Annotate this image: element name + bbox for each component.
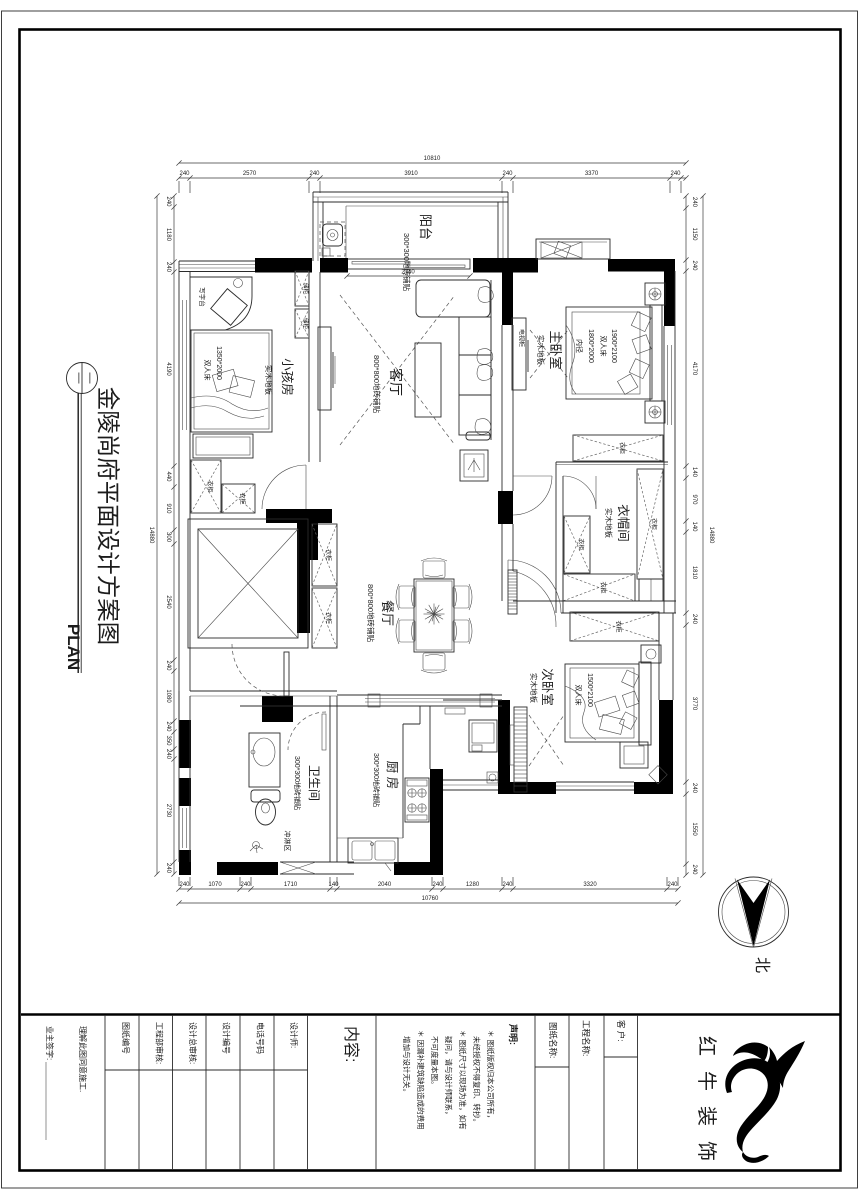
svg-text:800*800地砖铺贴: 800*800地砖铺贴: [366, 584, 376, 642]
svg-text:衣柜: 衣柜: [618, 442, 626, 454]
svg-text:240: 240: [502, 171, 513, 177]
svg-text:4170: 4170: [691, 362, 697, 376]
svg-text:300*300地砖铺贴: 300*300地砖铺贴: [372, 753, 381, 807]
svg-text:阳台: 阳台: [418, 214, 433, 240]
svg-text:衣柜: 衣柜: [325, 612, 333, 624]
svg-text:240: 240: [667, 882, 678, 888]
svg-text:PLAN: PLAN: [64, 624, 83, 670]
svg-text:设计总审核:: 设计总审核:: [188, 1022, 198, 1064]
svg-text:＊ 因漏补建筑缺陷造成的费用: ＊ 因漏补建筑缺陷造成的费用: [416, 1030, 426, 1130]
svg-text:实木地板: 实木地板: [529, 673, 539, 703]
svg-text:增加与设计无关。: 增加与设计无关。: [402, 1036, 412, 1096]
svg-text:2540: 2540: [165, 595, 171, 609]
svg-text:240: 240: [309, 171, 320, 177]
svg-text:实木地板: 实木地板: [264, 365, 274, 395]
svg-text:3370: 3370: [585, 171, 599, 177]
svg-text:餐厅: 餐厅: [380, 600, 395, 626]
svg-text:2040: 2040: [378, 882, 392, 888]
svg-text:350: 350: [165, 735, 171, 746]
svg-text:储柜: 储柜: [302, 318, 310, 330]
svg-text:14880: 14880: [708, 527, 714, 544]
svg-text:240: 240: [165, 262, 171, 273]
svg-text:240: 240: [691, 197, 697, 208]
svg-text:140: 140: [691, 467, 697, 478]
svg-text:240: 240: [670, 171, 681, 177]
svg-text:电视柜: 电视柜: [518, 329, 526, 347]
svg-text:声明:: 声明:: [508, 1023, 519, 1045]
svg-text:1280: 1280: [466, 882, 480, 888]
svg-text:业主签字:: 业主签字:: [45, 1026, 55, 1060]
svg-text:设计编号: 设计编号: [222, 1022, 232, 1054]
svg-text:饰: 饰: [695, 1141, 718, 1161]
svg-text:240: 240: [691, 614, 697, 625]
svg-text:240: 240: [691, 864, 697, 875]
svg-text:3320: 3320: [583, 882, 597, 888]
svg-text:双人床: 双人床: [203, 360, 212, 381]
svg-text:电话号码: 电话号码: [256, 1022, 266, 1054]
svg-text:工程部审核:: 工程部审核:: [155, 1022, 165, 1064]
svg-text:图纸名称:: 图纸名称:: [548, 1022, 558, 1058]
svg-text:客 户:: 客 户:: [616, 1020, 626, 1042]
svg-text:金陵尚府平面设计方案图: 金陵尚府平面设计方案图: [95, 387, 121, 646]
svg-text:14880: 14880: [148, 527, 154, 544]
svg-text:＊ 图纸版权归本公司所有，: ＊ 图纸版权归本公司所有，: [486, 1030, 496, 1122]
svg-text:10810: 10810: [424, 156, 441, 162]
svg-text:客厅: 客厅: [388, 368, 404, 396]
svg-text:实木地板: 实木地板: [604, 508, 614, 538]
svg-text:写字台: 写字台: [198, 287, 207, 307]
svg-text:240: 240: [179, 882, 190, 888]
svg-text:实木地板: 实木地板: [536, 335, 546, 365]
svg-text:内径: 内径: [575, 339, 584, 353]
svg-text:衣柜: 衣柜: [577, 538, 585, 550]
svg-text:图纸编号: 图纸编号: [121, 1022, 131, 1054]
svg-text:小孩房: 小孩房: [280, 358, 295, 396]
svg-text:4190: 4190: [165, 362, 171, 376]
svg-text:1900*2100: 1900*2100: [610, 329, 617, 363]
svg-text:双人床: 双人床: [574, 685, 583, 706]
svg-text:140: 140: [691, 521, 697, 532]
svg-text:1550: 1550: [691, 822, 697, 836]
svg-text:240: 240: [165, 660, 171, 671]
svg-text:240: 240: [691, 783, 697, 794]
svg-text:240: 240: [691, 260, 697, 271]
svg-text:240: 240: [432, 882, 443, 888]
svg-text:卫生间: 卫生间: [307, 765, 321, 801]
svg-text:1070: 1070: [208, 882, 222, 888]
svg-text:970: 970: [691, 494, 697, 505]
svg-text:理解此图同意施工.: 理解此图同意施工.: [78, 1026, 88, 1092]
svg-text:北: 北: [753, 957, 771, 973]
svg-text:2740: 2740: [401, 270, 415, 276]
svg-text:1150: 1150: [691, 228, 697, 242]
svg-text:设计师:: 设计师:: [289, 1022, 299, 1048]
svg-text:240: 240: [165, 196, 171, 207]
svg-text:3910: 3910: [404, 171, 418, 177]
svg-text:衣柜: 衣柜: [206, 480, 214, 492]
svg-text:衣柜: 衣柜: [650, 518, 658, 530]
svg-text:300*300地砖铺贴: 300*300地砖铺贴: [402, 233, 412, 291]
svg-text:1350*2000: 1350*2000: [215, 346, 222, 380]
svg-text:—: —: [84, 373, 96, 384]
svg-text:主卧室: 主卧室: [548, 330, 563, 369]
svg-text:储柜: 储柜: [302, 283, 310, 295]
svg-text:300: 300: [165, 532, 171, 543]
svg-text:内容:: 内容:: [342, 1026, 360, 1062]
svg-text:未经授权不得复印、转抄。: 未经授权不得复印、转抄。: [472, 1036, 482, 1126]
svg-text:240: 240: [502, 882, 513, 888]
svg-text:300*300地砖铺贴: 300*300地砖铺贴: [293, 756, 302, 810]
svg-text:工程名称:: 工程名称:: [581, 1020, 591, 1056]
svg-text:240: 240: [165, 863, 171, 874]
svg-text:装: 装: [695, 1106, 718, 1126]
svg-text:1080: 1080: [165, 689, 171, 703]
svg-text:不可度量本图。: 不可度量本图。: [430, 1036, 440, 1089]
svg-text:910: 910: [165, 503, 171, 514]
svg-text:衣帽间: 衣帽间: [616, 504, 631, 542]
svg-text:1710: 1710: [284, 882, 298, 888]
svg-text:1800*2000: 1800*2000: [587, 329, 594, 363]
svg-text:疑问，请与设计师联系，: 疑问，请与设计师联系，: [444, 1036, 454, 1119]
svg-text:次卧室: 次卧室: [540, 668, 555, 706]
svg-text:240: 240: [179, 171, 190, 177]
svg-text:1180: 1180: [165, 228, 171, 242]
svg-text:＊ 图纸尺寸以现场为准，如有: ＊ 图纸尺寸以现场为准，如有: [458, 1030, 468, 1130]
svg-text:1810: 1810: [691, 566, 697, 580]
svg-text:440: 440: [165, 471, 171, 482]
svg-text:衣柜: 衣柜: [325, 549, 333, 561]
svg-text:2570: 2570: [243, 171, 257, 177]
svg-text:240: 240: [165, 749, 171, 760]
svg-text:厨 房: 厨 房: [385, 761, 400, 789]
svg-text:800*800地砖铺贴: 800*800地砖铺贴: [372, 355, 382, 413]
svg-text:10760: 10760: [422, 896, 439, 902]
svg-text:2730: 2730: [165, 804, 171, 818]
svg-text:240: 240: [240, 882, 251, 888]
svg-text:3770: 3770: [691, 697, 697, 711]
svg-text:冲淋区: 冲淋区: [283, 831, 292, 852]
svg-text:双人床: 双人床: [599, 336, 608, 357]
svg-text:衣柜: 衣柜: [239, 492, 247, 504]
svg-text:衣柜: 衣柜: [599, 581, 607, 593]
svg-text:240: 240: [165, 721, 171, 732]
svg-text:1500*2100: 1500*2100: [586, 673, 593, 707]
svg-text:红: 红: [695, 1036, 718, 1056]
svg-text:衣柜: 衣柜: [615, 620, 623, 632]
svg-text:—: —: [73, 373, 85, 384]
svg-text:牛: 牛: [695, 1071, 718, 1091]
